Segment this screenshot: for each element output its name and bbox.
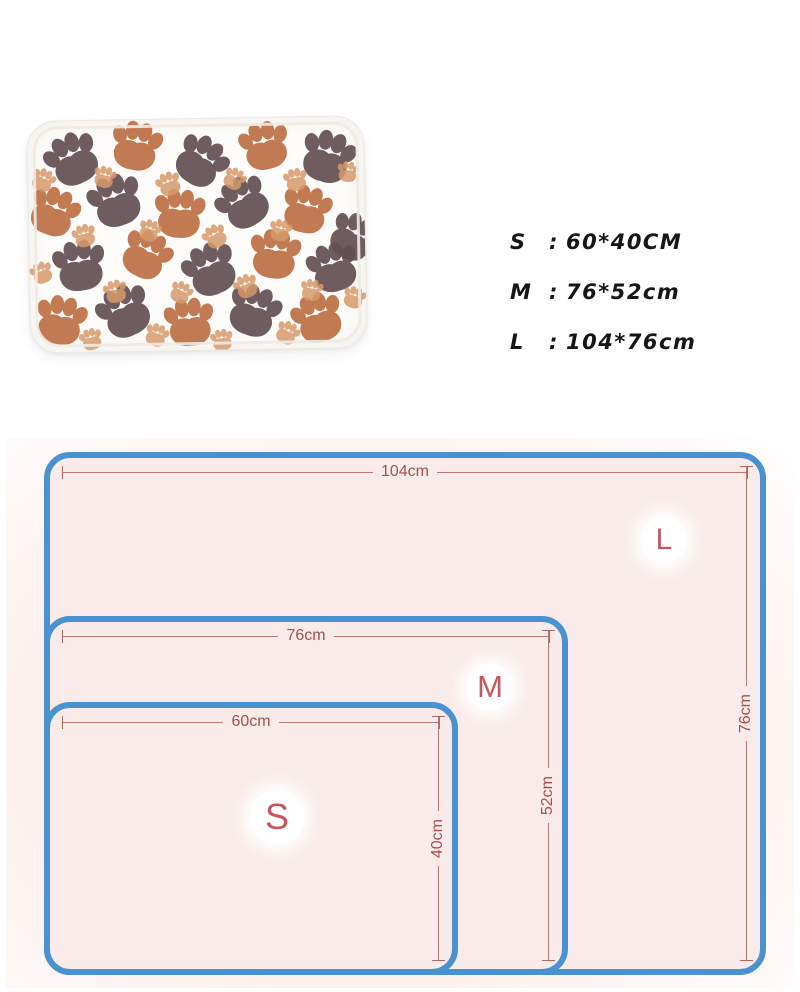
size-row-l-label: L: [510, 330, 542, 354]
size-row-s-value: 60*40CM: [566, 230, 682, 254]
dimension-line: [437, 472, 747, 473]
paw-print: [104, 116, 168, 175]
paw-pattern: [27, 116, 367, 353]
paw-print: [160, 295, 219, 349]
height-dimension-medium: 52cm: [540, 630, 556, 961]
dimension-tick: [542, 960, 555, 961]
size-row-m-separator: :: [542, 280, 566, 304]
size-badge-small: S: [250, 790, 304, 844]
size-badge-medium: M: [467, 664, 513, 710]
dimension-line: [63, 722, 223, 723]
paw-print: [233, 116, 297, 175]
blanket-photo: [26, 115, 368, 354]
paw-print: [27, 258, 57, 287]
height-dimension-large: 76cm: [738, 466, 754, 961]
size-rectangle-small: 60cm 40cm S: [44, 702, 458, 975]
size-row-s: S : 60*40CM: [510, 230, 696, 254]
width-label-medium: 76cm: [278, 628, 333, 644]
dimension-line: [746, 741, 747, 960]
dimension-line: [548, 823, 549, 960]
size-row-s-separator: :: [542, 230, 566, 254]
height-dimension-small: 40cm: [430, 716, 446, 961]
dimension-line: [279, 722, 439, 723]
dimension-line: [438, 717, 439, 811]
size-row-s-label: S: [510, 230, 542, 254]
dimension-line: [63, 636, 278, 637]
size-row-l: L : 104*76cm: [510, 330, 696, 354]
height-label-large: 76cm: [738, 686, 754, 741]
size-row-m-value: 76*52cm: [566, 280, 680, 304]
size-row-l-separator: :: [542, 330, 566, 354]
size-row-m-label: M: [510, 280, 542, 304]
dimension-line: [548, 631, 549, 768]
size-row-l-value: 104*76cm: [566, 330, 696, 354]
width-label-large: 104cm: [373, 464, 437, 480]
size-list: S : 60*40CM M : 76*52cm L : 104*76cm: [510, 230, 696, 354]
width-dimension-large: 104cm: [62, 464, 748, 480]
width-dimension-small: 60cm: [62, 714, 440, 730]
product-size-page: S : 60*40CM M : 76*52cm L : 104*76cm 104…: [0, 0, 800, 992]
size-letter-medium: M: [477, 669, 503, 705]
width-dimension-medium: 76cm: [62, 628, 550, 644]
dimension-line: [334, 636, 549, 637]
height-label-medium: 52cm: [540, 768, 556, 823]
size-letter-large: L: [656, 523, 673, 557]
dimension-line: [438, 866, 439, 960]
dimension-line: [63, 472, 373, 473]
dimension-tick: [740, 960, 753, 961]
paw-print: [76, 325, 106, 353]
size-badge-large: L: [641, 517, 687, 563]
paw-print: [208, 327, 236, 353]
dimension-line: [746, 467, 747, 686]
height-label-small: 40cm: [430, 811, 446, 866]
width-label-small: 60cm: [223, 714, 278, 730]
size-letter-small: S: [265, 796, 289, 838]
size-row-m: M : 76*52cm: [510, 280, 696, 304]
dimension-tick: [432, 960, 445, 961]
